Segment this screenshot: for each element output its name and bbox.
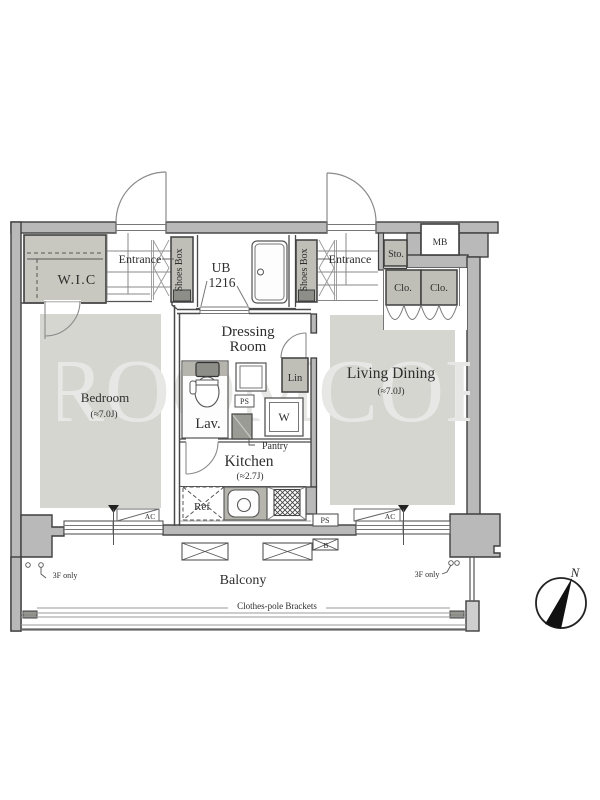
svg-text:Ref: Ref (194, 501, 210, 513)
svg-text:B: B (324, 542, 329, 550)
svg-text:3F only: 3F only (53, 571, 78, 580)
svg-text:Balcony: Balcony (220, 573, 267, 588)
svg-text:Clothes-pole Brackets: Clothes-pole Brackets (237, 601, 317, 611)
svg-text:UB: UB (212, 260, 231, 275)
svg-text:Living Dining: Living Dining (347, 365, 436, 382)
svg-text:(≈2.7J): (≈2.7J) (236, 471, 263, 482)
svg-text:Clo.: Clo. (430, 283, 448, 294)
svg-text:1216: 1216 (209, 275, 236, 290)
svg-text:W.I.C: W.I.C (58, 273, 97, 288)
svg-text:Kitchen: Kitchen (224, 453, 273, 470)
svg-text:(≈7.0J): (≈7.0J) (377, 386, 404, 397)
svg-text:Bedroom: Bedroom (81, 390, 129, 405)
svg-text:PS: PS (240, 397, 249, 406)
svg-text:Entrance: Entrance (329, 252, 372, 266)
svg-text:W: W (278, 410, 290, 424)
svg-text:AC: AC (385, 512, 395, 521)
svg-text:AC: AC (145, 512, 155, 521)
svg-text:Room: Room (230, 339, 267, 355)
svg-text:MB: MB (433, 238, 448, 248)
svg-text:(≈7.0J): (≈7.0J) (90, 409, 117, 420)
svg-text:Lin: Lin (288, 373, 303, 384)
svg-text:Pantry: Pantry (262, 441, 288, 452)
svg-text:Entrance: Entrance (119, 252, 162, 266)
svg-text:N: N (570, 565, 581, 580)
svg-text:Dressing: Dressing (221, 324, 275, 340)
svg-text:Clo.: Clo. (394, 283, 412, 294)
svg-text:Shoes Box: Shoes Box (174, 248, 185, 291)
svg-text:PS: PS (321, 516, 330, 525)
svg-text:Shoes Box: Shoes Box (299, 248, 310, 291)
svg-text:Sto.: Sto. (388, 249, 404, 260)
svg-text:3F only: 3F only (415, 570, 440, 579)
svg-text:Lav.: Lav. (195, 416, 220, 432)
